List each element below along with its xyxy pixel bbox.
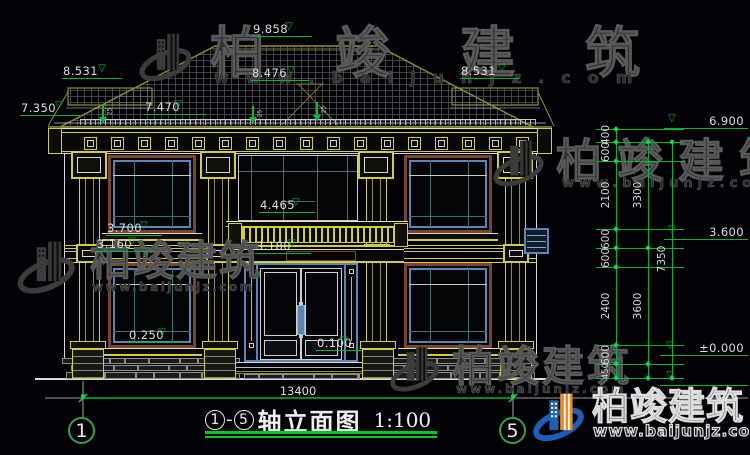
- cornice-bracket: [381, 137, 394, 150]
- elevation-marker-6900: 6.900▽: [664, 114, 748, 129]
- cornice-bracket: [273, 137, 286, 150]
- stone-block: [154, 372, 180, 379]
- dim-label: 7350: [656, 246, 668, 273]
- pilaster-capital: [358, 151, 394, 179]
- dim-chain-line: [648, 142, 649, 378]
- stone-block: [169, 365, 187, 371]
- dim-label: 450: [601, 363, 611, 379]
- watermark-logo-icon: [492, 134, 550, 196]
- stone-block: [114, 365, 138, 371]
- watermark-logo-icon: [14, 234, 84, 304]
- door-handle: [297, 305, 305, 335]
- elevation-marker-8476: 8.476▽: [251, 66, 309, 81]
- axis-bubble-1: 1: [68, 417, 95, 444]
- cornice-left-return: [48, 128, 62, 154]
- stone-block: [138, 365, 169, 371]
- dim-label: 2400: [600, 293, 612, 320]
- window-1f-right: [404, 263, 492, 348]
- dim-label: 600: [600, 248, 612, 268]
- pilaster-pedestal: [72, 349, 104, 379]
- dim-label: 600: [600, 142, 612, 162]
- stone-block: [314, 374, 332, 379]
- axis-bubble-5: 5: [499, 417, 526, 444]
- pilaster-pedestal: [204, 349, 236, 379]
- roof-slope-arrow: [252, 106, 254, 122]
- title-underline: [205, 431, 437, 434]
- elevation-marker-8531-left: 8.531▽: [62, 64, 122, 79]
- watermark-logo-icon: [388, 341, 446, 401]
- elevation-marker-0250: 0.250▽: [128, 328, 186, 343]
- cornice-bracket: [246, 137, 259, 150]
- elevation-marker-0100: 0.100▽: [316, 336, 362, 351]
- cornice-bracket: [354, 137, 367, 150]
- cornice-bracket: [219, 137, 232, 150]
- cornice-bracket: [165, 137, 178, 150]
- elevation-marker-3160: 3.160▽: [96, 237, 154, 252]
- stone-block: [283, 374, 314, 379]
- elevation-marker-8531-right: 8.531▽: [460, 64, 520, 79]
- roof-slope-arrow: [316, 102, 318, 120]
- stone-block: [259, 374, 283, 379]
- pilaster-capital: [200, 151, 236, 179]
- watermark-site: www.baijunjz.com: [562, 177, 750, 190]
- total-width-dim: 13400: [268, 384, 328, 398]
- brand-logo-text: 柏竣建筑: [592, 388, 744, 425]
- stone-block: [180, 372, 202, 379]
- cornice-bracket: [435, 137, 448, 150]
- stone-block: [358, 374, 360, 379]
- cornice-bracket: [462, 137, 475, 150]
- cornice-bracket: [138, 137, 151, 150]
- stone-block: [105, 372, 136, 379]
- stone-block: [180, 358, 198, 364]
- cornice-bracket: [300, 137, 313, 150]
- cornice-bracket: [111, 137, 124, 150]
- dim-label: 3600: [632, 293, 644, 320]
- title-scale: 1:100: [374, 408, 432, 432]
- title-axis-from: 1: [205, 410, 225, 430]
- cornice-bracket: [327, 137, 340, 150]
- watermark-logo-icon: [138, 26, 198, 92]
- stone-block: [149, 358, 180, 364]
- cornice-bracket: [408, 137, 421, 150]
- elevation-marker-7350: 7.350▽: [20, 101, 80, 116]
- stone-block: [125, 358, 149, 364]
- window-sill: [398, 233, 498, 241]
- elevation-marker-3600: 3.600▽: [664, 225, 748, 240]
- eave-tile-edge: [80, 119, 536, 125]
- pilaster-shaft: [366, 263, 387, 341]
- door-terrace: [234, 362, 370, 374]
- cornice-bracket: [192, 137, 205, 150]
- stone-block: [244, 374, 259, 379]
- cad-elevation-drawing: 25 25 25 9.858▽ 8.531▽ 8.531▽ 8.476▽ 7.4…: [0, 0, 750, 455]
- watermark-site: www.baijunjz.com: [92, 281, 255, 293]
- title-axis-to: 5: [234, 410, 254, 430]
- window-sill: [102, 348, 202, 356]
- right-wing-roof: [452, 88, 538, 105]
- elevation-marker-0000: ±0.000▽: [660, 341, 748, 356]
- ac-box: [524, 228, 549, 254]
- roof-slope-arrow: [102, 104, 104, 122]
- title-dash: -: [226, 409, 233, 430]
- cornice-bracket: [84, 137, 97, 150]
- pilaster-shaft: [208, 179, 229, 245]
- stone-block: [332, 374, 358, 379]
- stone-block: [110, 358, 125, 364]
- brand-logo-icon: [532, 386, 590, 450]
- elevation-marker-3700: 3.700▽: [106, 221, 162, 236]
- dim-label: 2100: [600, 182, 612, 209]
- canopy-corbel: [394, 223, 408, 247]
- elevation-marker-7470: 7.470▽: [144, 100, 206, 115]
- elevation-marker-4465: 4.465▽: [259, 198, 315, 213]
- door-leaf-left: [260, 268, 301, 360]
- dim-label: 3300: [632, 182, 644, 209]
- stone-block: [136, 372, 154, 379]
- window-2f-right: [404, 155, 492, 233]
- title-underline-2: [205, 436, 437, 438]
- pilaster-shaft: [505, 263, 526, 341]
- dim-chain-line: [616, 129, 617, 378]
- dim-label: 600: [600, 229, 612, 249]
- elevation-marker-9858: 9.858▽: [252, 22, 312, 37]
- pilaster-capital: [71, 151, 107, 179]
- brand-logo-site: www.baijunjz.com: [593, 424, 750, 440]
- elevation-marker-3180: 3.180▽: [255, 239, 311, 254]
